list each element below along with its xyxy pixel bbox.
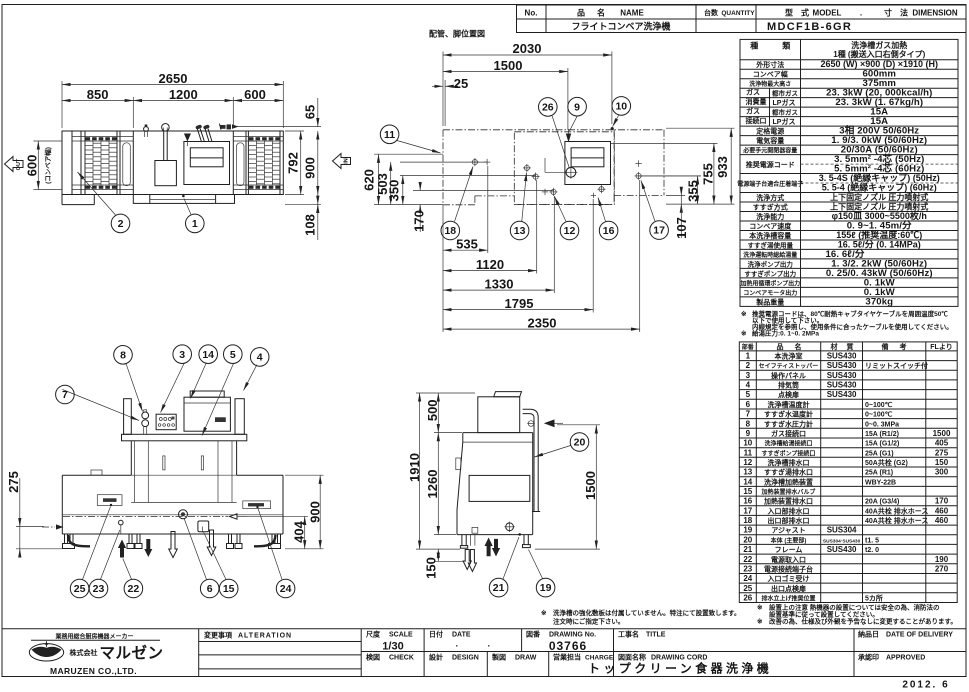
- svg-text:消費量: 消費量: [746, 97, 767, 106]
- svg-text:変更事項: 変更事項: [204, 631, 233, 640]
- svg-text:10: 10: [615, 101, 627, 113]
- svg-text:12: 12: [564, 225, 576, 237]
- svg-text:1: 1: [192, 218, 198, 230]
- svg-text:150: 150: [423, 557, 438, 579]
- svg-text:2650 (W) ×900 (D) ×1910 (H): 2650 (W) ×900 (D) ×1910 (H): [820, 59, 938, 69]
- svg-text:納品日: 納品日: [858, 630, 879, 639]
- svg-text:式: 式: [801, 8, 809, 18]
- svg-text:マルゼン: マルゼン: [99, 643, 163, 662]
- svg-text:業務用総合厨房機器メーカー: 業務用総合厨房機器メーカー: [54, 632, 133, 640]
- svg-text:275: 275: [935, 448, 949, 457]
- svg-text:DIMENSION: DIMENSION: [912, 9, 958, 18]
- svg-text:155ℓ (推奨温度:60℃): 155ℓ (推奨温度:60℃): [836, 229, 922, 240]
- svg-text:セイフティストッパー: セイフティストッパー: [759, 362, 819, 370]
- svg-text:洗浄能力: 洗浄能力: [756, 212, 784, 221]
- svg-text:営業担当: 営業担当: [553, 653, 581, 662]
- svg-text:定格電源: 定格電源: [756, 127, 784, 136]
- svg-text:16. 5ℓ/分 (0. 14MPa): 16. 5ℓ/分 (0. 14MPa): [838, 239, 921, 250]
- svg-text:1500: 1500: [933, 429, 951, 438]
- svg-text:15: 15: [743, 487, 752, 496]
- svg-text:都市ガス: 都市ガス: [771, 89, 798, 98]
- svg-text:コンベア速度: コンベア速度: [749, 222, 792, 231]
- svg-text:1330: 1330: [485, 276, 514, 291]
- svg-text:類: 類: [781, 41, 791, 51]
- svg-text:3: 3: [179, 349, 185, 361]
- svg-text:台数: 台数: [704, 8, 719, 17]
- svg-text:名: 名: [795, 342, 802, 351]
- svg-text:460: 460: [935, 506, 949, 515]
- svg-text:19: 19: [743, 526, 752, 535]
- svg-text:13: 13: [514, 225, 526, 237]
- svg-text:2030: 2030: [513, 41, 542, 56]
- svg-text:電源接続端子台: 電源接続端子台: [764, 564, 813, 573]
- svg-text:本洗浄槽容量: 本洗浄槽容量: [748, 231, 791, 240]
- svg-text:0~100℃: 0~100℃: [865, 401, 893, 409]
- svg-text:すすぎ水圧力計: すすぎ水圧力計: [764, 419, 813, 428]
- svg-text:20: 20: [743, 535, 752, 544]
- svg-text:5カ所: 5カ所: [865, 594, 883, 603]
- svg-text:SUS430: SUS430: [827, 352, 857, 361]
- svg-text:14: 14: [202, 349, 214, 361]
- svg-text:t2. 0: t2. 0: [865, 547, 879, 554]
- svg-text:3. 5-4S (絶縁キャップ) (50Hz): 3. 5-4S (絶縁キャップ) (50Hz): [819, 172, 940, 183]
- svg-text:22: 22: [743, 555, 752, 564]
- svg-text:すすぎポンプ接続口: すすぎポンプ接続口: [762, 449, 816, 457]
- svg-text:工事名: 工事名: [618, 630, 639, 639]
- svg-text:(コンベア幅): (コンベア幅): [43, 147, 52, 184]
- svg-text:10: 10: [743, 439, 752, 448]
- svg-text:排気筒: 排気筒: [778, 381, 799, 390]
- svg-text:755: 755: [700, 163, 715, 185]
- svg-text:すすぎ方式: すすぎ方式: [753, 203, 788, 212]
- svg-text:535: 535: [456, 236, 478, 251]
- svg-text:ガス接続口: ガス接続口: [771, 429, 806, 438]
- svg-text:25: 25: [743, 584, 752, 593]
- svg-text:品: 品: [577, 9, 585, 18]
- svg-text:9: 9: [574, 101, 580, 113]
- svg-text:9: 9: [746, 429, 751, 438]
- svg-text:DRAWING No.: DRAWING No.: [549, 632, 596, 639]
- svg-text:電源端子台適合圧着端子: 電源端子台適合圧着端子: [737, 180, 803, 188]
- svg-text:洗浄槽の強化敷板は付属していません。特注にて設置致します。: 洗浄槽の強化敷板は付属していません。特注にて設置致します。: [553, 608, 740, 617]
- svg-text:改善の為、仕様及び外観を予告なしに変更することがあります。: 改善の為、仕様及び外観を予告なしに変更することがあります。: [769, 617, 957, 626]
- svg-text:必要手元開閉器容量: 必要手元開閉器容量: [742, 147, 797, 155]
- svg-text:25: 25: [454, 76, 468, 91]
- svg-text:50A共栓 (G2): 50A共栓 (G2): [865, 458, 908, 467]
- svg-text:推奨電源コード: 推奨電源コード: [746, 160, 795, 169]
- svg-text:フレーム: フレーム: [775, 546, 803, 554]
- svg-text:190: 190: [935, 555, 949, 564]
- svg-text:405: 405: [935, 439, 949, 448]
- svg-text:洗浄槽ガス加熱: 洗浄槽ガス加熱: [851, 40, 907, 50]
- svg-text:上下固定ノズル 圧力噴射式: 上下固定ノズル 圧力噴射式: [830, 192, 928, 202]
- svg-text:23: 23: [743, 564, 752, 573]
- svg-text:名: 名: [597, 8, 605, 18]
- svg-text:850: 850: [87, 87, 109, 102]
- svg-text:DRAW: DRAW: [515, 655, 537, 662]
- svg-text:トップクリーン食器洗浄機: トップクリーン食器洗浄機: [588, 661, 772, 676]
- svg-text:日付: 日付: [429, 630, 443, 639]
- svg-text:t1. 5: t1. 5: [865, 537, 879, 544]
- svg-text:質: 質: [847, 342, 854, 351]
- svg-text:8: 8: [746, 419, 751, 428]
- svg-text:※: ※: [757, 618, 763, 626]
- svg-text:TITLE: TITLE: [646, 632, 666, 639]
- svg-text:検図: 検図: [366, 653, 380, 662]
- svg-text:21: 21: [493, 582, 505, 594]
- svg-text:考: 考: [900, 342, 907, 351]
- svg-text:SUS430: SUS430: [827, 390, 857, 399]
- svg-text:26: 26: [743, 594, 752, 603]
- svg-text:設置基準に従って設置してください。: 設置基準に従って設置してください。: [769, 610, 879, 619]
- svg-text:操作パネル: 操作パネル: [771, 371, 806, 380]
- svg-text:17: 17: [653, 225, 665, 237]
- svg-text:1500: 1500: [494, 58, 523, 73]
- svg-text:接続口: 接続口: [746, 116, 767, 125]
- svg-text:7: 7: [62, 389, 68, 401]
- svg-text:170: 170: [935, 497, 949, 506]
- svg-text:600: 600: [244, 87, 266, 102]
- svg-text:フライトコンベア洗浄機: フライトコンベア洗浄機: [571, 21, 670, 32]
- svg-text:給湯圧力:0. 1~0. 2MPa: 給湯圧力:0. 1~0. 2MPa: [752, 329, 819, 338]
- svg-text:すすぎ湯使用量: すすぎ湯使用量: [748, 241, 794, 250]
- svg-text:備: 備: [882, 342, 889, 351]
- svg-text:65: 65: [302, 105, 317, 119]
- svg-text:900: 900: [307, 501, 322, 523]
- svg-text:型: 型: [785, 8, 793, 18]
- svg-text:18: 18: [743, 516, 752, 525]
- svg-text:設置上の注意 熱機器の設置については安全の為、消防法の: 設置上の注意 熱機器の設置については安全の為、消防法の: [769, 602, 940, 611]
- svg-text:·: ·: [488, 641, 491, 651]
- svg-text:5. 5-4 (絶縁キャップ) (60Hz): 5. 5-4 (絶縁キャップ) (60Hz): [822, 182, 937, 193]
- svg-text:注文時にご指定下さい。: 注文時にご指定下さい。: [553, 617, 624, 626]
- svg-text:·: ·: [456, 641, 459, 651]
- svg-text:製品重量: 製品重量: [755, 297, 784, 306]
- svg-text:ガス: ガス: [746, 107, 760, 116]
- svg-text:洗浄槽排水口: 洗浄槽排水口: [768, 458, 810, 467]
- svg-text:7: 7: [746, 410, 751, 419]
- svg-text:24: 24: [743, 574, 752, 583]
- svg-text:SUS430: SUS430: [827, 371, 857, 380]
- svg-text:2350: 2350: [528, 315, 557, 330]
- svg-text:MODEL: MODEL: [813, 9, 842, 18]
- svg-text:25A (G1): 25A (G1): [865, 450, 894, 457]
- svg-text:本洗浄室: 本洗浄室: [774, 352, 803, 361]
- svg-text:※: ※: [541, 609, 547, 617]
- svg-text:IN: IN: [344, 158, 350, 164]
- svg-text:108: 108: [302, 214, 317, 236]
- svg-text:1120: 1120: [476, 257, 504, 272]
- svg-text:ALTERATION: ALTERATION: [238, 633, 292, 640]
- svg-text:2650: 2650: [159, 71, 188, 86]
- svg-text:本体 (主要部): 本体 (主要部): [771, 536, 807, 544]
- svg-text:FLより: FLより: [930, 342, 952, 351]
- svg-text:No.: No.: [525, 9, 538, 18]
- svg-text:洗浄物最大高さ: 洗浄物最大高さ: [749, 80, 791, 88]
- svg-text:19: 19: [540, 582, 552, 594]
- svg-text:17: 17: [743, 506, 752, 515]
- svg-text:APPROVED: APPROVED: [886, 655, 925, 662]
- svg-text:460: 460: [935, 516, 949, 525]
- svg-text:2012. 6: 2012. 6: [902, 680, 949, 691]
- svg-text:03766: 03766: [549, 639, 587, 653]
- svg-text:電源取入口: 電源取入口: [771, 555, 806, 564]
- svg-text:370kg: 370kg: [865, 296, 893, 307]
- svg-text:※: ※: [741, 310, 747, 318]
- svg-text:15: 15: [223, 583, 235, 595]
- svg-text:12: 12: [743, 458, 752, 467]
- svg-text:洗浄方式: 洗浄方式: [756, 193, 784, 202]
- svg-text:設計: 設計: [429, 653, 443, 662]
- svg-text:1500: 1500: [583, 471, 598, 500]
- svg-text:900: 900: [302, 157, 317, 179]
- svg-text:300: 300: [935, 468, 949, 477]
- svg-text:承認印: 承認印: [858, 653, 879, 662]
- svg-text:QUANTITY: QUANTITY: [721, 10, 755, 17]
- svg-text:1/30: 1/30: [382, 641, 403, 653]
- svg-text:部番: 部番: [742, 343, 755, 351]
- svg-text:SUS430: SUS430: [827, 381, 857, 390]
- svg-text:SUS430: SUS430: [827, 361, 857, 370]
- svg-text:すすぎ水温度計: すすぎ水温度計: [764, 410, 813, 419]
- svg-text:500: 500: [425, 399, 440, 421]
- svg-text:5: 5: [746, 390, 751, 399]
- svg-text:NAME: NAME: [620, 9, 644, 18]
- svg-text:品: 品: [777, 342, 784, 351]
- svg-text:※: ※: [741, 330, 747, 338]
- svg-text:法: 法: [900, 8, 908, 18]
- svg-text:355: 355: [685, 180, 700, 202]
- svg-text:リミットスイッチ付: リミットスイッチ付: [865, 361, 928, 370]
- svg-text:洗浄槽給湯接続口: 洗浄槽給湯接続口: [764, 440, 812, 448]
- svg-text:14: 14: [743, 477, 752, 486]
- svg-text:SCALE: SCALE: [389, 632, 413, 639]
- svg-text:SUS304: SUS304: [827, 526, 857, 535]
- svg-text:40A共栓 排水ホース: 40A共栓 排水ホース: [865, 506, 928, 515]
- svg-text:SUS304·SUS430: SUS304·SUS430: [823, 538, 861, 544]
- svg-text:上下固定ノズル 圧力噴射式: 上下固定ノズル 圧力噴射式: [830, 202, 928, 212]
- svg-text:製図: 製図: [491, 653, 506, 662]
- svg-text:コンベア幅: コンベア幅: [753, 70, 788, 79]
- svg-text:792: 792: [286, 152, 301, 174]
- svg-text:4: 4: [746, 381, 751, 390]
- svg-text:洗浄槽温度計: 洗浄槽温度計: [768, 400, 810, 409]
- svg-text:1260: 1260: [425, 470, 440, 499]
- svg-text:材: 材: [830, 342, 838, 351]
- svg-text:15A (R1/2): 15A (R1/2): [865, 431, 899, 438]
- svg-text:6: 6: [207, 583, 213, 595]
- svg-text:図面名称: 図面名称: [618, 653, 646, 662]
- svg-text:φ150皿 3000~5500枚/h: φ150皿 3000~5500枚/h: [832, 210, 927, 221]
- svg-text:404: 404: [292, 520, 307, 542]
- svg-text:株式会社: 株式会社: [70, 648, 98, 657]
- svg-text:1: 1: [746, 352, 751, 361]
- svg-text:MARUZEN CO.,LTD.: MARUZEN CO.,LTD.: [50, 666, 137, 676]
- svg-text:アジャスト: アジャスト: [771, 527, 805, 535]
- svg-text:350: 350: [387, 180, 402, 202]
- svg-text:21: 21: [743, 545, 752, 554]
- svg-text:2: 2: [118, 218, 124, 230]
- svg-text:入口部排水口: 入口部排水口: [767, 506, 810, 515]
- svg-text:都市ガス: 都市ガス: [771, 108, 798, 117]
- svg-text:24: 24: [280, 583, 292, 595]
- svg-text:出口点検扉: 出口点検扉: [771, 584, 806, 593]
- svg-text:8: 8: [120, 349, 126, 361]
- svg-text:22: 22: [128, 583, 140, 595]
- svg-text:4: 4: [257, 352, 263, 364]
- svg-text:270: 270: [935, 564, 949, 573]
- svg-text:11: 11: [744, 448, 753, 457]
- svg-text:洗浄運転時総給湯量: 洗浄運転時総給湯量: [743, 251, 797, 259]
- svg-text:洗浄槽加熱装置: 洗浄槽加熱装置: [764, 477, 813, 486]
- svg-text:LPガス: LPガス: [773, 117, 796, 126]
- svg-text:WBY-22B: WBY-22B: [865, 479, 896, 486]
- svg-text:OUT: OUT: [16, 158, 22, 170]
- svg-text:ガス: ガス: [746, 88, 760, 97]
- svg-text:275: 275: [6, 471, 21, 493]
- svg-text:加熱用循環ポンプ出力: 加熱用循環ポンプ出力: [739, 279, 800, 287]
- svg-text:CHECK: CHECK: [389, 655, 414, 662]
- svg-text:13: 13: [743, 468, 752, 477]
- svg-text:150: 150: [935, 458, 949, 467]
- svg-text:CHARGE: CHARGE: [585, 655, 614, 662]
- svg-text:排水立上げ推奨位置: 排水立上げ推奨位置: [761, 595, 815, 603]
- svg-text:1種 (搬送入口右側タイプ): 1種 (搬送入口右側タイプ): [833, 49, 925, 59]
- svg-text:107: 107: [674, 217, 689, 239]
- svg-text:SUS430: SUS430: [827, 545, 857, 554]
- svg-text:LPガス: LPガス: [773, 98, 796, 107]
- svg-text:20: 20: [574, 437, 586, 449]
- svg-text:16: 16: [603, 225, 615, 237]
- svg-text:933: 933: [715, 156, 730, 178]
- svg-text:6: 6: [746, 400, 751, 409]
- svg-text:1910: 1910: [407, 453, 422, 482]
- svg-text:11: 11: [384, 129, 395, 141]
- svg-text:26: 26: [542, 102, 554, 114]
- svg-text:170: 170: [412, 210, 427, 232]
- svg-text:DATE OF DELIVERY: DATE OF DELIVERY: [886, 632, 953, 639]
- svg-text:図番: 図番: [526, 630, 541, 639]
- svg-text:外形寸法: 外形寸法: [756, 60, 784, 69]
- svg-text:15A (G1/2): 15A (G1/2): [865, 441, 899, 448]
- svg-text:18: 18: [444, 225, 456, 237]
- svg-text:コンベアモータ出力: コンベアモータ出力: [743, 289, 797, 297]
- svg-text:加熱装置排水口: 加熱装置排水口: [763, 497, 813, 506]
- svg-text:DRAWING CORD: DRAWING CORD: [651, 655, 707, 662]
- svg-text:種: 種: [750, 41, 758, 51]
- svg-text:入口ゴミ受け: 入口ゴミ受け: [767, 574, 810, 583]
- svg-text:すすぎ湯排水口: すすぎ湯排水口: [764, 468, 813, 477]
- svg-text:40A共栓 排水ホース: 40A共栓 排水ホース: [865, 516, 928, 525]
- svg-text:寸: 寸: [884, 8, 892, 18]
- svg-text:1200: 1200: [169, 87, 198, 102]
- svg-text:23: 23: [93, 583, 105, 595]
- svg-text:加熱装置排水バルブ: 加熱装置排水バルブ: [760, 488, 815, 496]
- svg-text:MDCF1B-6GR: MDCF1B-6GR: [767, 21, 852, 33]
- svg-text:電気容量: 電気容量: [756, 136, 784, 145]
- svg-text:3: 3: [746, 371, 751, 380]
- svg-text:2: 2: [746, 361, 751, 370]
- svg-text:16: 16: [743, 497, 752, 506]
- svg-text:配管、脚位置図: 配管、脚位置図: [429, 29, 485, 39]
- svg-text:DATE: DATE: [452, 632, 471, 639]
- svg-text:※: ※: [757, 603, 763, 611]
- svg-text:25A (R1): 25A (R1): [865, 470, 893, 477]
- svg-text:出口部排水口: 出口部排水口: [768, 516, 810, 525]
- svg-text:洗浄ポンプ出力: 洗浄ポンプ出力: [748, 260, 794, 269]
- svg-text:25: 25: [74, 583, 86, 595]
- svg-text:尺度: 尺度: [365, 630, 381, 639]
- svg-text:.: .: [860, 9, 862, 18]
- svg-text:1795: 1795: [505, 296, 534, 311]
- svg-text:20A (G3/4): 20A (G3/4): [865, 499, 899, 506]
- svg-text:DESIGN: DESIGN: [452, 655, 479, 662]
- svg-text:すすぎポンプ出力: すすぎポンプ出力: [744, 269, 796, 278]
- svg-text:5: 5: [230, 349, 236, 361]
- svg-text:600: 600: [25, 155, 40, 177]
- svg-text:点検扉: 点検扉: [778, 390, 799, 399]
- svg-text:0~0. 3MPa: 0~0. 3MPa: [865, 421, 899, 428]
- svg-text:0~100℃: 0~100℃: [865, 411, 893, 419]
